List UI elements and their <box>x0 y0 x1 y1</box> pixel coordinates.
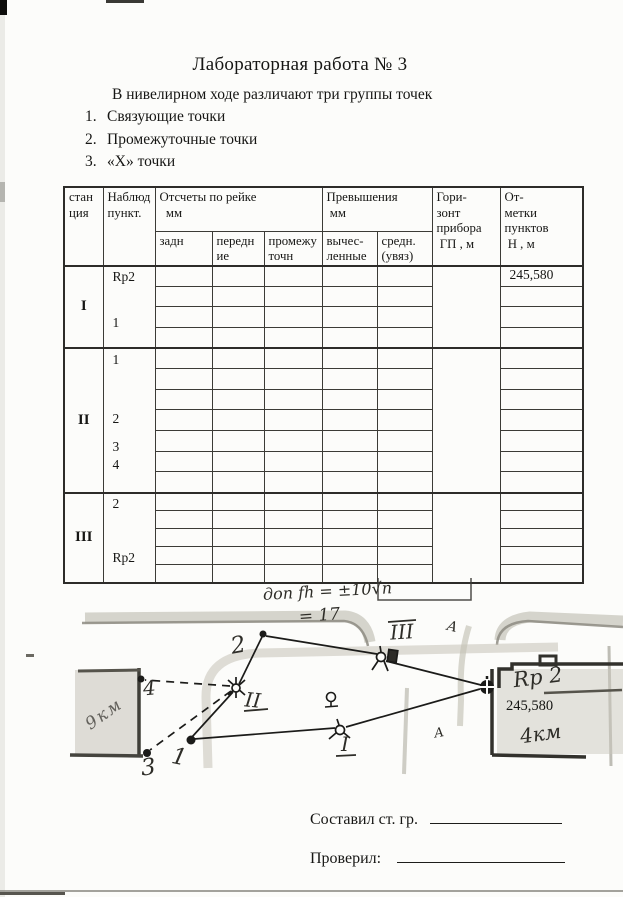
point-label: 1 <box>113 352 120 368</box>
point-marker-symbol <box>325 693 338 708</box>
table-cell <box>264 348 322 369</box>
checked-by-row: Проверил: <box>310 848 565 868</box>
table-cell <box>500 286 583 307</box>
signature-line <box>430 809 562 824</box>
col-header-back: задн <box>155 231 212 266</box>
table-cell <box>500 451 583 472</box>
table-cell <box>264 547 322 565</box>
table-cell <box>322 511 377 529</box>
table-cell <box>377 430 432 451</box>
sketch-station-label-iii: III <box>388 619 415 645</box>
table-cell <box>322 348 377 369</box>
table-cell <box>212 286 264 307</box>
table-cell <box>322 493 377 511</box>
table-cell <box>264 266 322 287</box>
table-cell <box>264 389 322 410</box>
pencil-line <box>404 688 407 774</box>
scan-artifact <box>0 182 5 202</box>
table-cell <box>377 547 432 565</box>
table-cell <box>322 286 377 307</box>
table-cell <box>322 430 377 451</box>
table-cell <box>500 348 583 369</box>
table-body: IRp21245,580II1234III2Rp2 <box>64 266 583 583</box>
table-cell <box>264 451 322 472</box>
table-cell <box>500 368 583 389</box>
sketch-point-label-4: 4 <box>141 675 157 700</box>
list-number: 3. <box>85 151 107 174</box>
table-cell <box>377 529 432 547</box>
table-cell <box>155 389 212 410</box>
table-cell <box>155 451 212 472</box>
table-cell <box>500 529 583 547</box>
col-group-readings: Отсчеты по рейке мм <box>155 187 322 231</box>
table-cell <box>500 327 583 348</box>
station-leg <box>329 733 336 739</box>
table-cell <box>264 327 322 348</box>
building-left-wall <box>70 755 143 756</box>
tree-mark: А <box>432 725 445 742</box>
point-label: 2 <box>113 496 120 512</box>
table-cell <box>155 493 212 511</box>
elevation-value: 245,580 <box>500 266 583 287</box>
intro-text: В нивелирном ходе различают три группы т… <box>112 86 432 104</box>
point-label: 4 <box>113 457 120 473</box>
point-label: Rp2 <box>113 550 136 566</box>
table-cell <box>212 389 264 410</box>
table-cell <box>155 286 212 307</box>
list-label: Промежуточные точки <box>107 129 257 152</box>
observed-points-cell: Rp21 <box>103 266 155 348</box>
table-cell <box>322 472 377 493</box>
table-cell <box>322 307 377 328</box>
col-header-intermediate: промежу точн <box>264 231 322 266</box>
station-label: II <box>64 348 103 493</box>
table-cell <box>377 266 432 287</box>
table-cell <box>500 389 583 410</box>
gp-cell <box>432 493 500 583</box>
list-item: 2. Промежуточные точки <box>85 129 257 152</box>
table-cell <box>500 430 583 451</box>
table-cell <box>155 368 212 389</box>
signature-line <box>397 848 565 863</box>
observed-points-cell: 1234 <box>103 348 155 493</box>
table-cell <box>155 266 212 287</box>
table-cell <box>212 327 264 348</box>
list-item: 1. Связующие точки <box>85 106 257 129</box>
station-leg <box>384 661 388 671</box>
table-cell <box>155 430 212 451</box>
station-circle <box>377 653 386 662</box>
point-dot-2 <box>260 631 267 638</box>
road-band <box>500 617 623 640</box>
table-cell <box>212 307 264 328</box>
col-header-mean: средн. (увяз) <box>377 231 432 266</box>
point-label: Rp2 <box>113 269 136 285</box>
table-cell <box>322 451 377 472</box>
table-cell <box>264 472 322 493</box>
table-cell <box>155 348 212 369</box>
table-cell <box>322 368 377 389</box>
table-cell <box>264 368 322 389</box>
table-cell <box>264 307 322 328</box>
table-cell <box>212 368 264 389</box>
building-left-wall <box>78 670 140 671</box>
table-cell <box>322 410 377 431</box>
table-cell <box>500 410 583 431</box>
building-right-wall <box>492 755 586 757</box>
table-cell <box>264 286 322 307</box>
table-cell <box>377 348 432 369</box>
misclosure-value: = 17 <box>298 604 341 627</box>
table-cell <box>155 327 212 348</box>
scan-artifact <box>0 892 65 895</box>
observed-points-cell: 2Rp2 <box>103 493 155 583</box>
document-page: Лабораторная работа № 3 В нивелирном ход… <box>0 0 623 897</box>
table-cell <box>500 493 583 511</box>
list-label: Связующие точки <box>107 106 225 129</box>
table-cell <box>212 511 264 529</box>
station-circle <box>232 684 240 692</box>
table-cell <box>155 472 212 493</box>
sight-line-1-i <box>194 728 335 739</box>
marker-base <box>325 706 338 707</box>
station-label: I <box>64 266 103 348</box>
table-cell <box>212 472 264 493</box>
table-cell <box>377 451 432 472</box>
col-header-marks: От- метки пунктов Н , м <box>500 187 583 266</box>
table-cell <box>500 547 583 565</box>
list-item: 3. «Х» точки <box>85 151 257 174</box>
table-cell <box>212 451 264 472</box>
table-cell <box>264 430 322 451</box>
table-cell <box>377 511 432 529</box>
table-cell <box>377 493 432 511</box>
road-curve <box>460 626 469 726</box>
table-cell <box>264 493 322 511</box>
table-cell <box>212 430 264 451</box>
table-cell <box>377 472 432 493</box>
table-cell <box>377 368 432 389</box>
table-cell <box>500 472 583 493</box>
table-cell <box>500 307 583 328</box>
table-cell <box>155 547 212 565</box>
sketch-station-label-i: I <box>340 732 350 756</box>
scan-artifact <box>0 890 623 892</box>
station-leg <box>380 646 381 652</box>
point-label: 2 <box>113 411 120 427</box>
table-cell <box>377 286 432 307</box>
gp-cell <box>432 266 500 348</box>
col-header-point: Наблюд пункт. <box>103 187 155 266</box>
table-cell <box>264 410 322 431</box>
table-cell <box>322 529 377 547</box>
list-number: 1. <box>85 106 107 129</box>
gp-cell <box>432 348 500 493</box>
table-cell <box>322 547 377 565</box>
table-cell <box>212 547 264 565</box>
table-cell <box>500 511 583 529</box>
table-cell <box>155 307 212 328</box>
point-types-list: 1. Связующие точки 2. Промежуточные точк… <box>85 106 257 174</box>
table-cell <box>377 410 432 431</box>
station-leg <box>337 719 339 725</box>
col-header-computed: вычес- ленные <box>322 231 377 266</box>
table-cell <box>377 389 432 410</box>
sketch-point-label-1: 1 <box>169 743 189 771</box>
sketch-point-label-3: 3 <box>140 754 157 781</box>
sight-line-iii-rp2 <box>386 661 481 685</box>
table-cell <box>212 529 264 547</box>
table-cell <box>212 348 264 369</box>
instrument-blob <box>387 650 398 663</box>
col-group-elevations: Превышения мм <box>322 187 432 231</box>
marker-circle <box>327 693 336 702</box>
tree-mark: А <box>444 618 459 636</box>
scan-artifact <box>0 0 7 15</box>
table-cell <box>155 511 212 529</box>
col-header-front: передн ие <box>212 231 264 266</box>
sight-line-ii-4-dashed <box>145 680 230 686</box>
col-header-station: стан ция <box>64 187 103 266</box>
compiled-by-row: Составил ст. гр. <box>310 809 562 829</box>
table-cell <box>155 529 212 547</box>
page-title: Лабораторная работа № 3 <box>0 54 600 76</box>
leveling-table: стан ция Наблюд пункт. Отсчеты по рейке … <box>63 186 584 584</box>
benchmark-elevation: 245,580 <box>506 698 553 714</box>
table-cell <box>322 389 377 410</box>
point-label: 3 <box>113 439 120 455</box>
col-header-horizon: Гори- зонт прибора ГП , м <box>432 187 500 266</box>
table-cell <box>377 327 432 348</box>
label-underline <box>336 755 356 756</box>
scan-artifact <box>106 0 144 3</box>
traverse-sketch: 9км доп fh = ±10√n = 17 <box>0 576 623 806</box>
list-label: «Х» точки <box>107 151 175 174</box>
table-cell <box>212 410 264 431</box>
table-cell <box>264 529 322 547</box>
station-label: III <box>64 493 103 583</box>
sight-line-ii-1 <box>192 692 233 737</box>
table-cell <box>322 327 377 348</box>
checked-by-label: Проверил: <box>310 850 381 867</box>
table-cell <box>322 266 377 287</box>
table-cell <box>212 493 264 511</box>
point-label: 1 <box>113 315 120 331</box>
table-cell <box>264 511 322 529</box>
table-cell <box>377 307 432 328</box>
station-leg <box>372 661 378 670</box>
table-cell <box>155 410 212 431</box>
table-cell <box>212 266 264 287</box>
list-number: 2. <box>85 129 107 152</box>
point-dot-1 <box>187 736 196 745</box>
compiled-by-label: Составил ст. гр. <box>310 811 418 828</box>
misclosure-formula: доп fh = ±10√n <box>262 578 392 604</box>
